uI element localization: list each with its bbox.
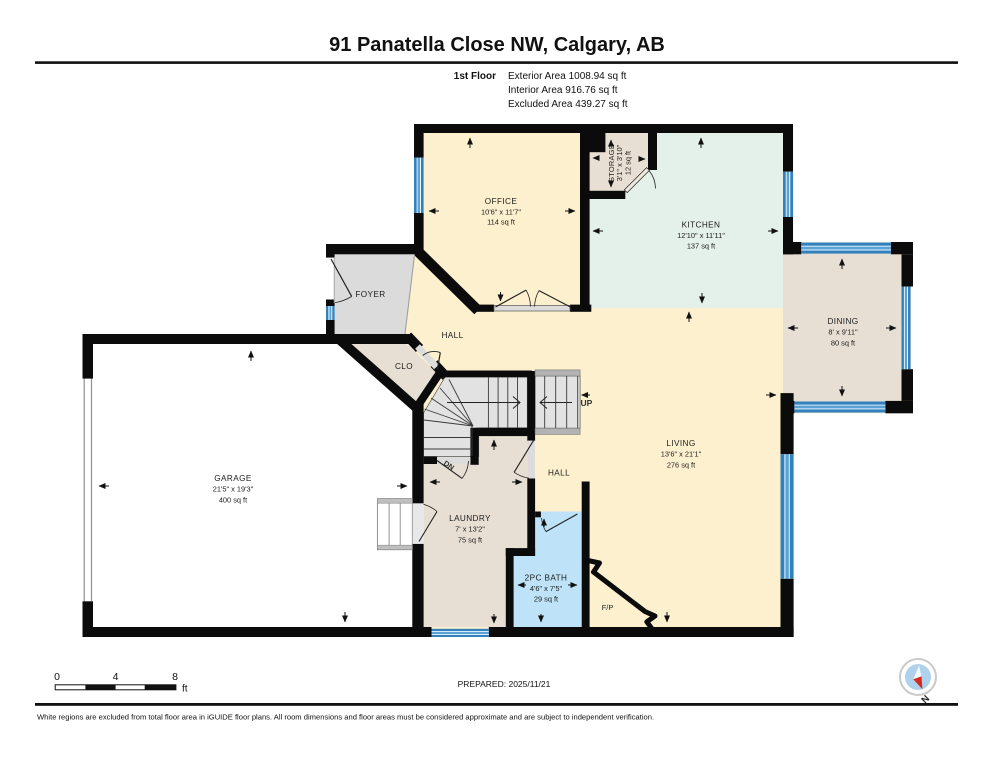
- svg-text:UP: UP: [581, 398, 593, 408]
- svg-text:400 sq ft: 400 sq ft: [219, 495, 247, 504]
- svg-text:8' x 9'11": 8' x 9'11": [828, 328, 858, 337]
- svg-text:276 sq ft: 276 sq ft: [667, 460, 695, 469]
- svg-text:4'6" x 7'5": 4'6" x 7'5": [530, 584, 563, 593]
- svg-text:21'5" x 19'3": 21'5" x 19'3": [213, 485, 254, 494]
- svg-text:Exterior Area 1008.94 sq ft: Exterior Area 1008.94 sq ft: [508, 71, 627, 82]
- svg-text:HALL: HALL: [441, 331, 463, 340]
- svg-text:OFFICE: OFFICE: [485, 197, 518, 206]
- svg-text:12 sq ft: 12 sq ft: [624, 151, 633, 175]
- svg-text:12'10" x 11'11": 12'10" x 11'11": [677, 231, 725, 240]
- svg-text:13'6" x 21'1": 13'6" x 21'1": [661, 450, 702, 459]
- svg-text:2PC BATH: 2PC BATH: [525, 574, 568, 583]
- svg-text:10'6" x 11'7": 10'6" x 11'7": [481, 208, 521, 217]
- svg-text:75 sq ft: 75 sq ft: [458, 535, 482, 544]
- svg-text:4: 4: [113, 671, 119, 683]
- svg-text:ft: ft: [182, 684, 188, 695]
- svg-text:HALL: HALL: [548, 469, 570, 478]
- svg-text:Excluded Area 439.27 sq ft: Excluded Area 439.27 sq ft: [508, 99, 628, 110]
- svg-text:GARAGE: GARAGE: [214, 474, 252, 483]
- svg-text:29 sq ft: 29 sq ft: [534, 595, 558, 604]
- svg-text:1st Floor: 1st Floor: [454, 71, 496, 82]
- svg-text:LIVING: LIVING: [666, 439, 695, 448]
- svg-text:91 Panatella Close NW, Calgary: 91 Panatella Close NW, Calgary, AB: [329, 34, 665, 56]
- svg-text:DINING: DINING: [827, 317, 858, 326]
- svg-text:White regions are excluded fro: White regions are excluded from total fl…: [37, 713, 654, 722]
- svg-text:137 sq ft: 137 sq ft: [687, 242, 715, 251]
- svg-text:0: 0: [54, 671, 60, 683]
- svg-text:CLO: CLO: [395, 362, 413, 371]
- svg-text:LAUNDRY: LAUNDRY: [449, 514, 491, 523]
- svg-text:F/P: F/P: [602, 603, 614, 612]
- svg-text:KITCHEN: KITCHEN: [682, 221, 721, 230]
- svg-text:80 sq ft: 80 sq ft: [831, 338, 855, 347]
- svg-text:8: 8: [172, 671, 178, 683]
- svg-text:FOYER: FOYER: [355, 290, 385, 299]
- svg-text:PREPARED: 2025/11/21: PREPARED: 2025/11/21: [458, 679, 551, 689]
- svg-text:7' x 13'2": 7' x 13'2": [455, 525, 485, 534]
- svg-text:114 sq ft: 114 sq ft: [487, 218, 515, 227]
- svg-text:Interior Area 916.76 sq ft: Interior Area 916.76 sq ft: [508, 85, 618, 96]
